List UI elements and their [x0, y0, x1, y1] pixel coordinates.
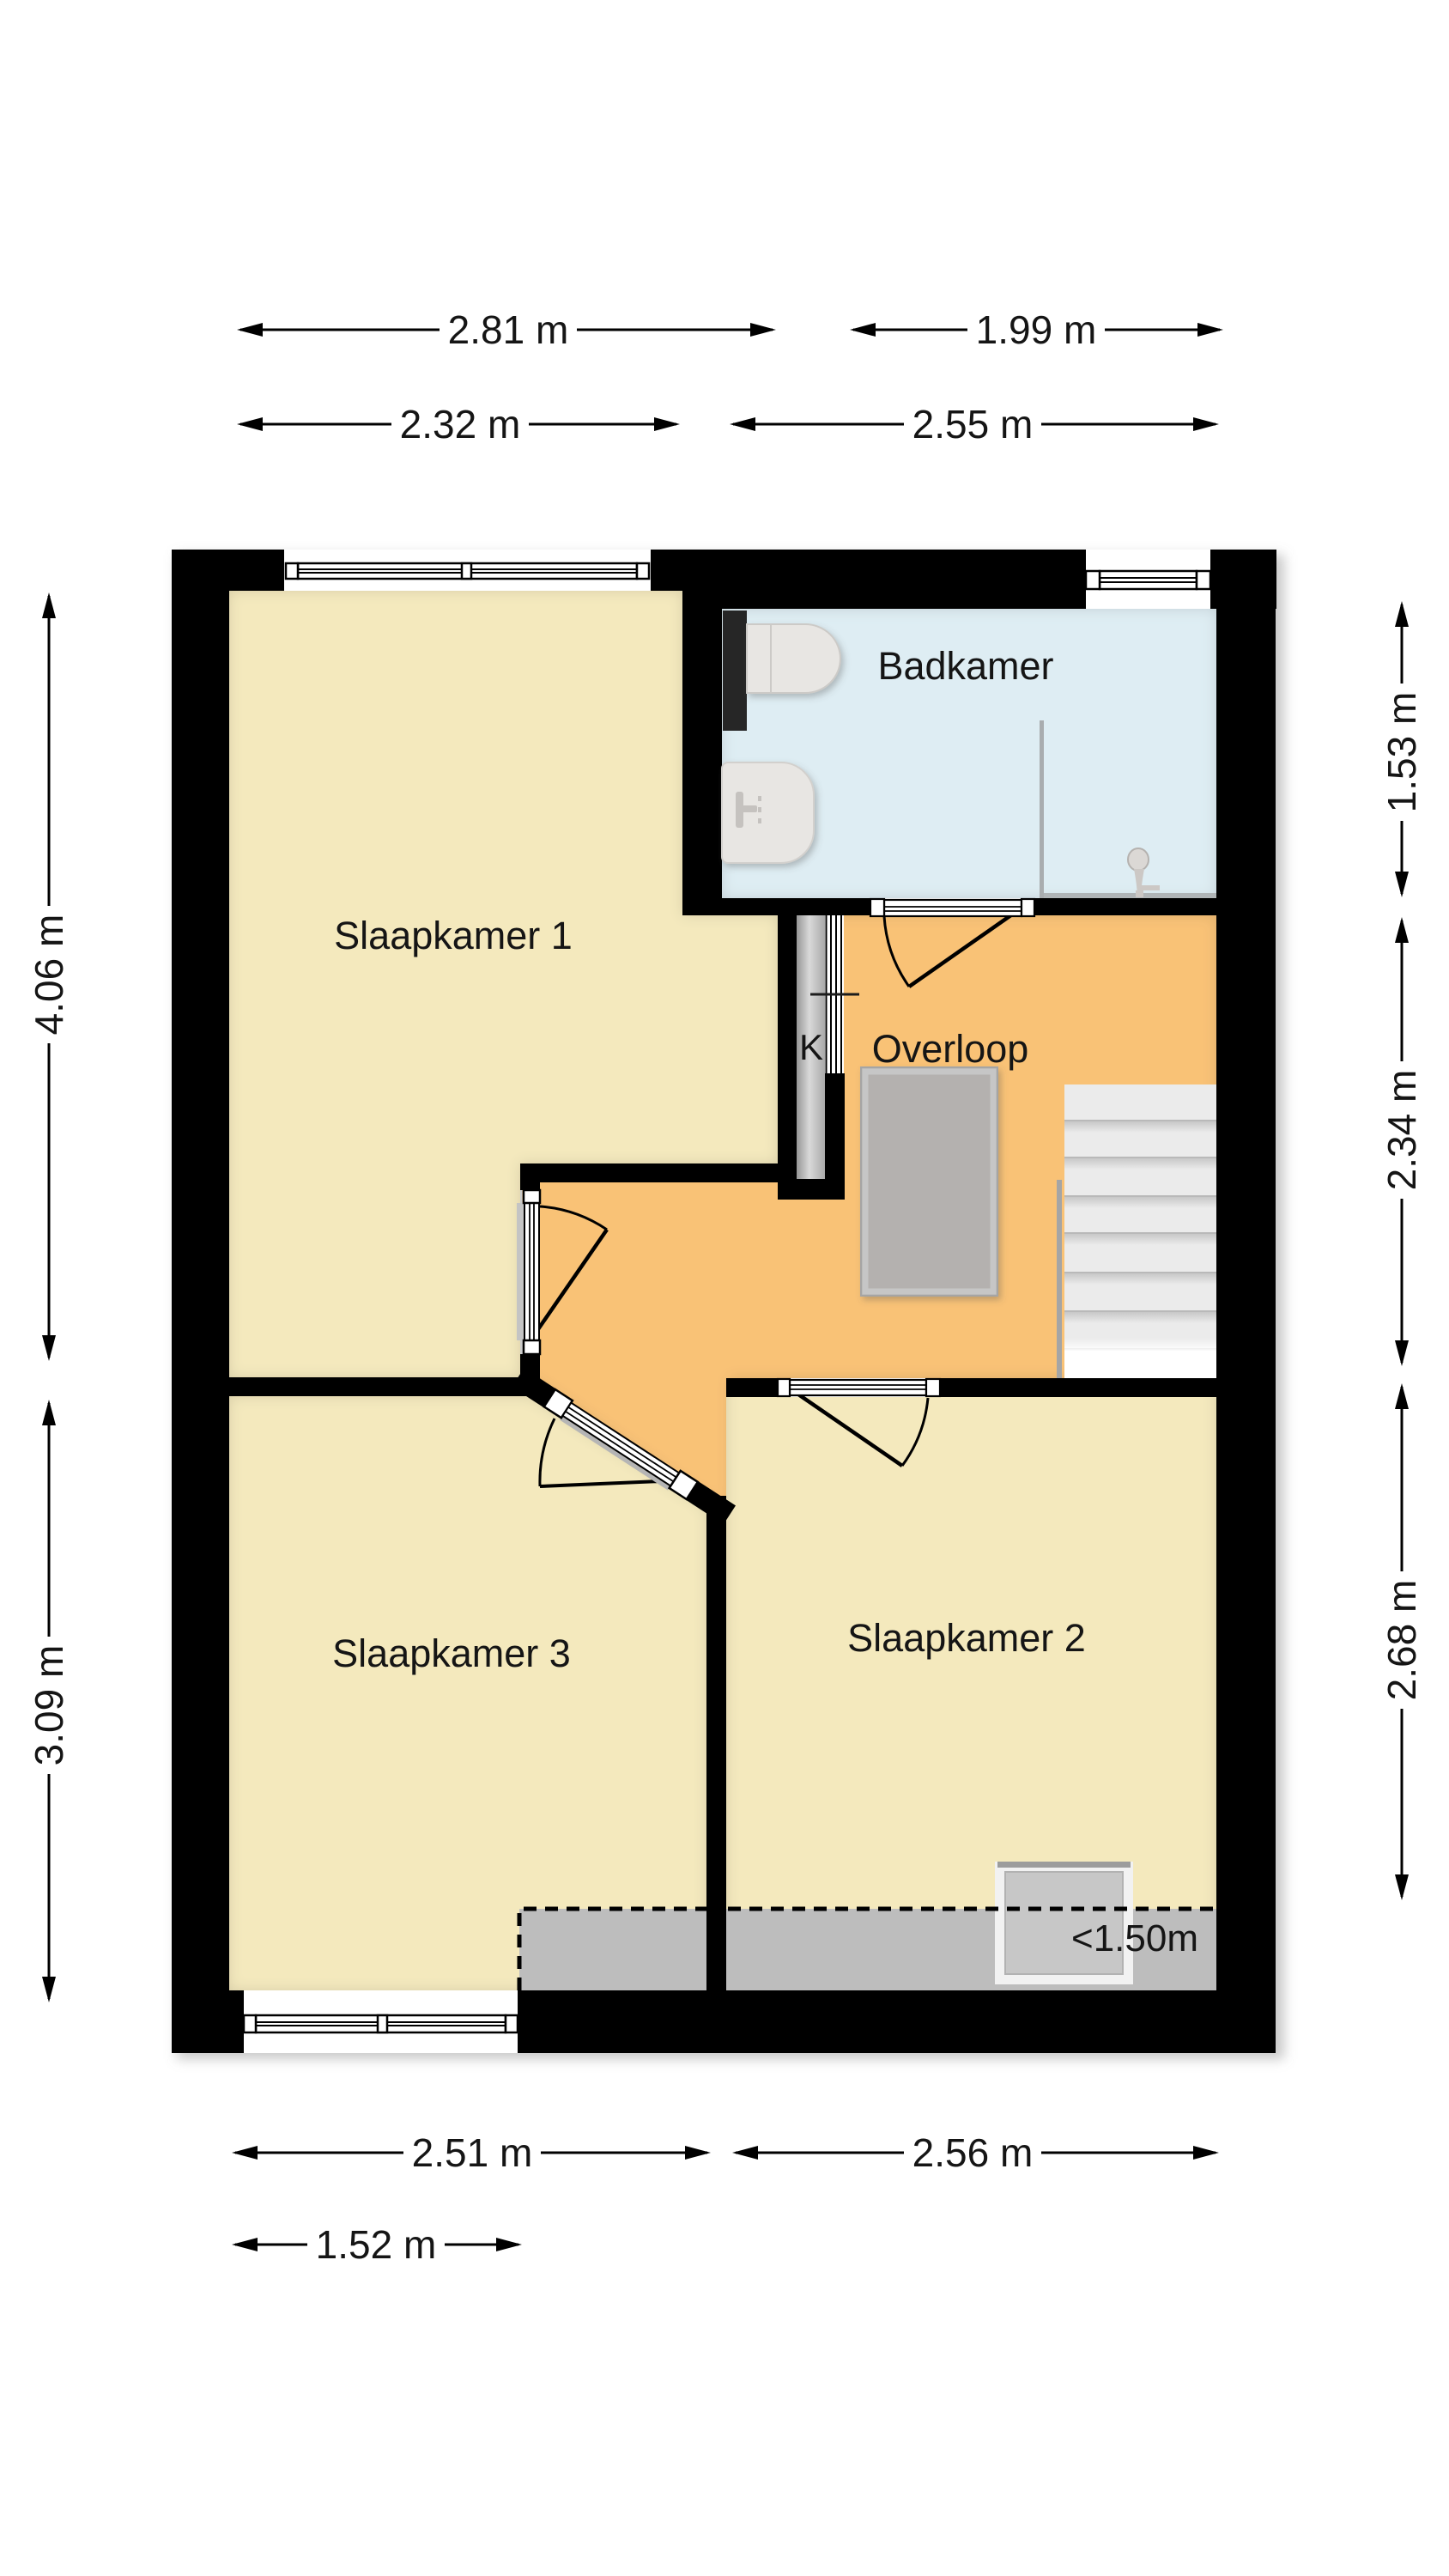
- svg-text:Overloop: Overloop: [872, 1027, 1029, 1071]
- svg-text:Slaapkamer 1: Slaapkamer 1: [334, 914, 573, 957]
- svg-text:Badkamer: Badkamer: [877, 644, 1053, 688]
- svg-text:Slaapkamer 2: Slaapkamer 2: [847, 1616, 1086, 1660]
- svg-text:2.51 m: 2.51 m: [412, 2130, 533, 2175]
- svg-text:K: K: [799, 1027, 823, 1067]
- svg-text:2.56 m: 2.56 m: [912, 2130, 1034, 2175]
- svg-text:2.32 m: 2.32 m: [400, 402, 521, 447]
- svg-text:2.34 m: 2.34 m: [1379, 1070, 1424, 1191]
- svg-text:2.55 m: 2.55 m: [912, 402, 1034, 447]
- svg-text:2.68 m: 2.68 m: [1379, 1580, 1424, 1701]
- svg-text:2.81 m: 2.81 m: [448, 307, 569, 352]
- svg-text:1.52 m: 1.52 m: [316, 2222, 437, 2267]
- svg-text:<1.50m: <1.50m: [1071, 1917, 1198, 1959]
- svg-text:1.99 m: 1.99 m: [976, 307, 1097, 352]
- svg-text:1.53 m: 1.53 m: [1379, 692, 1424, 813]
- svg-text:3.09 m: 3.09 m: [27, 1645, 71, 1766]
- svg-text:4.06 m: 4.06 m: [27, 914, 71, 1036]
- svg-text:Slaapkamer 3: Slaapkamer 3: [332, 1631, 571, 1675]
